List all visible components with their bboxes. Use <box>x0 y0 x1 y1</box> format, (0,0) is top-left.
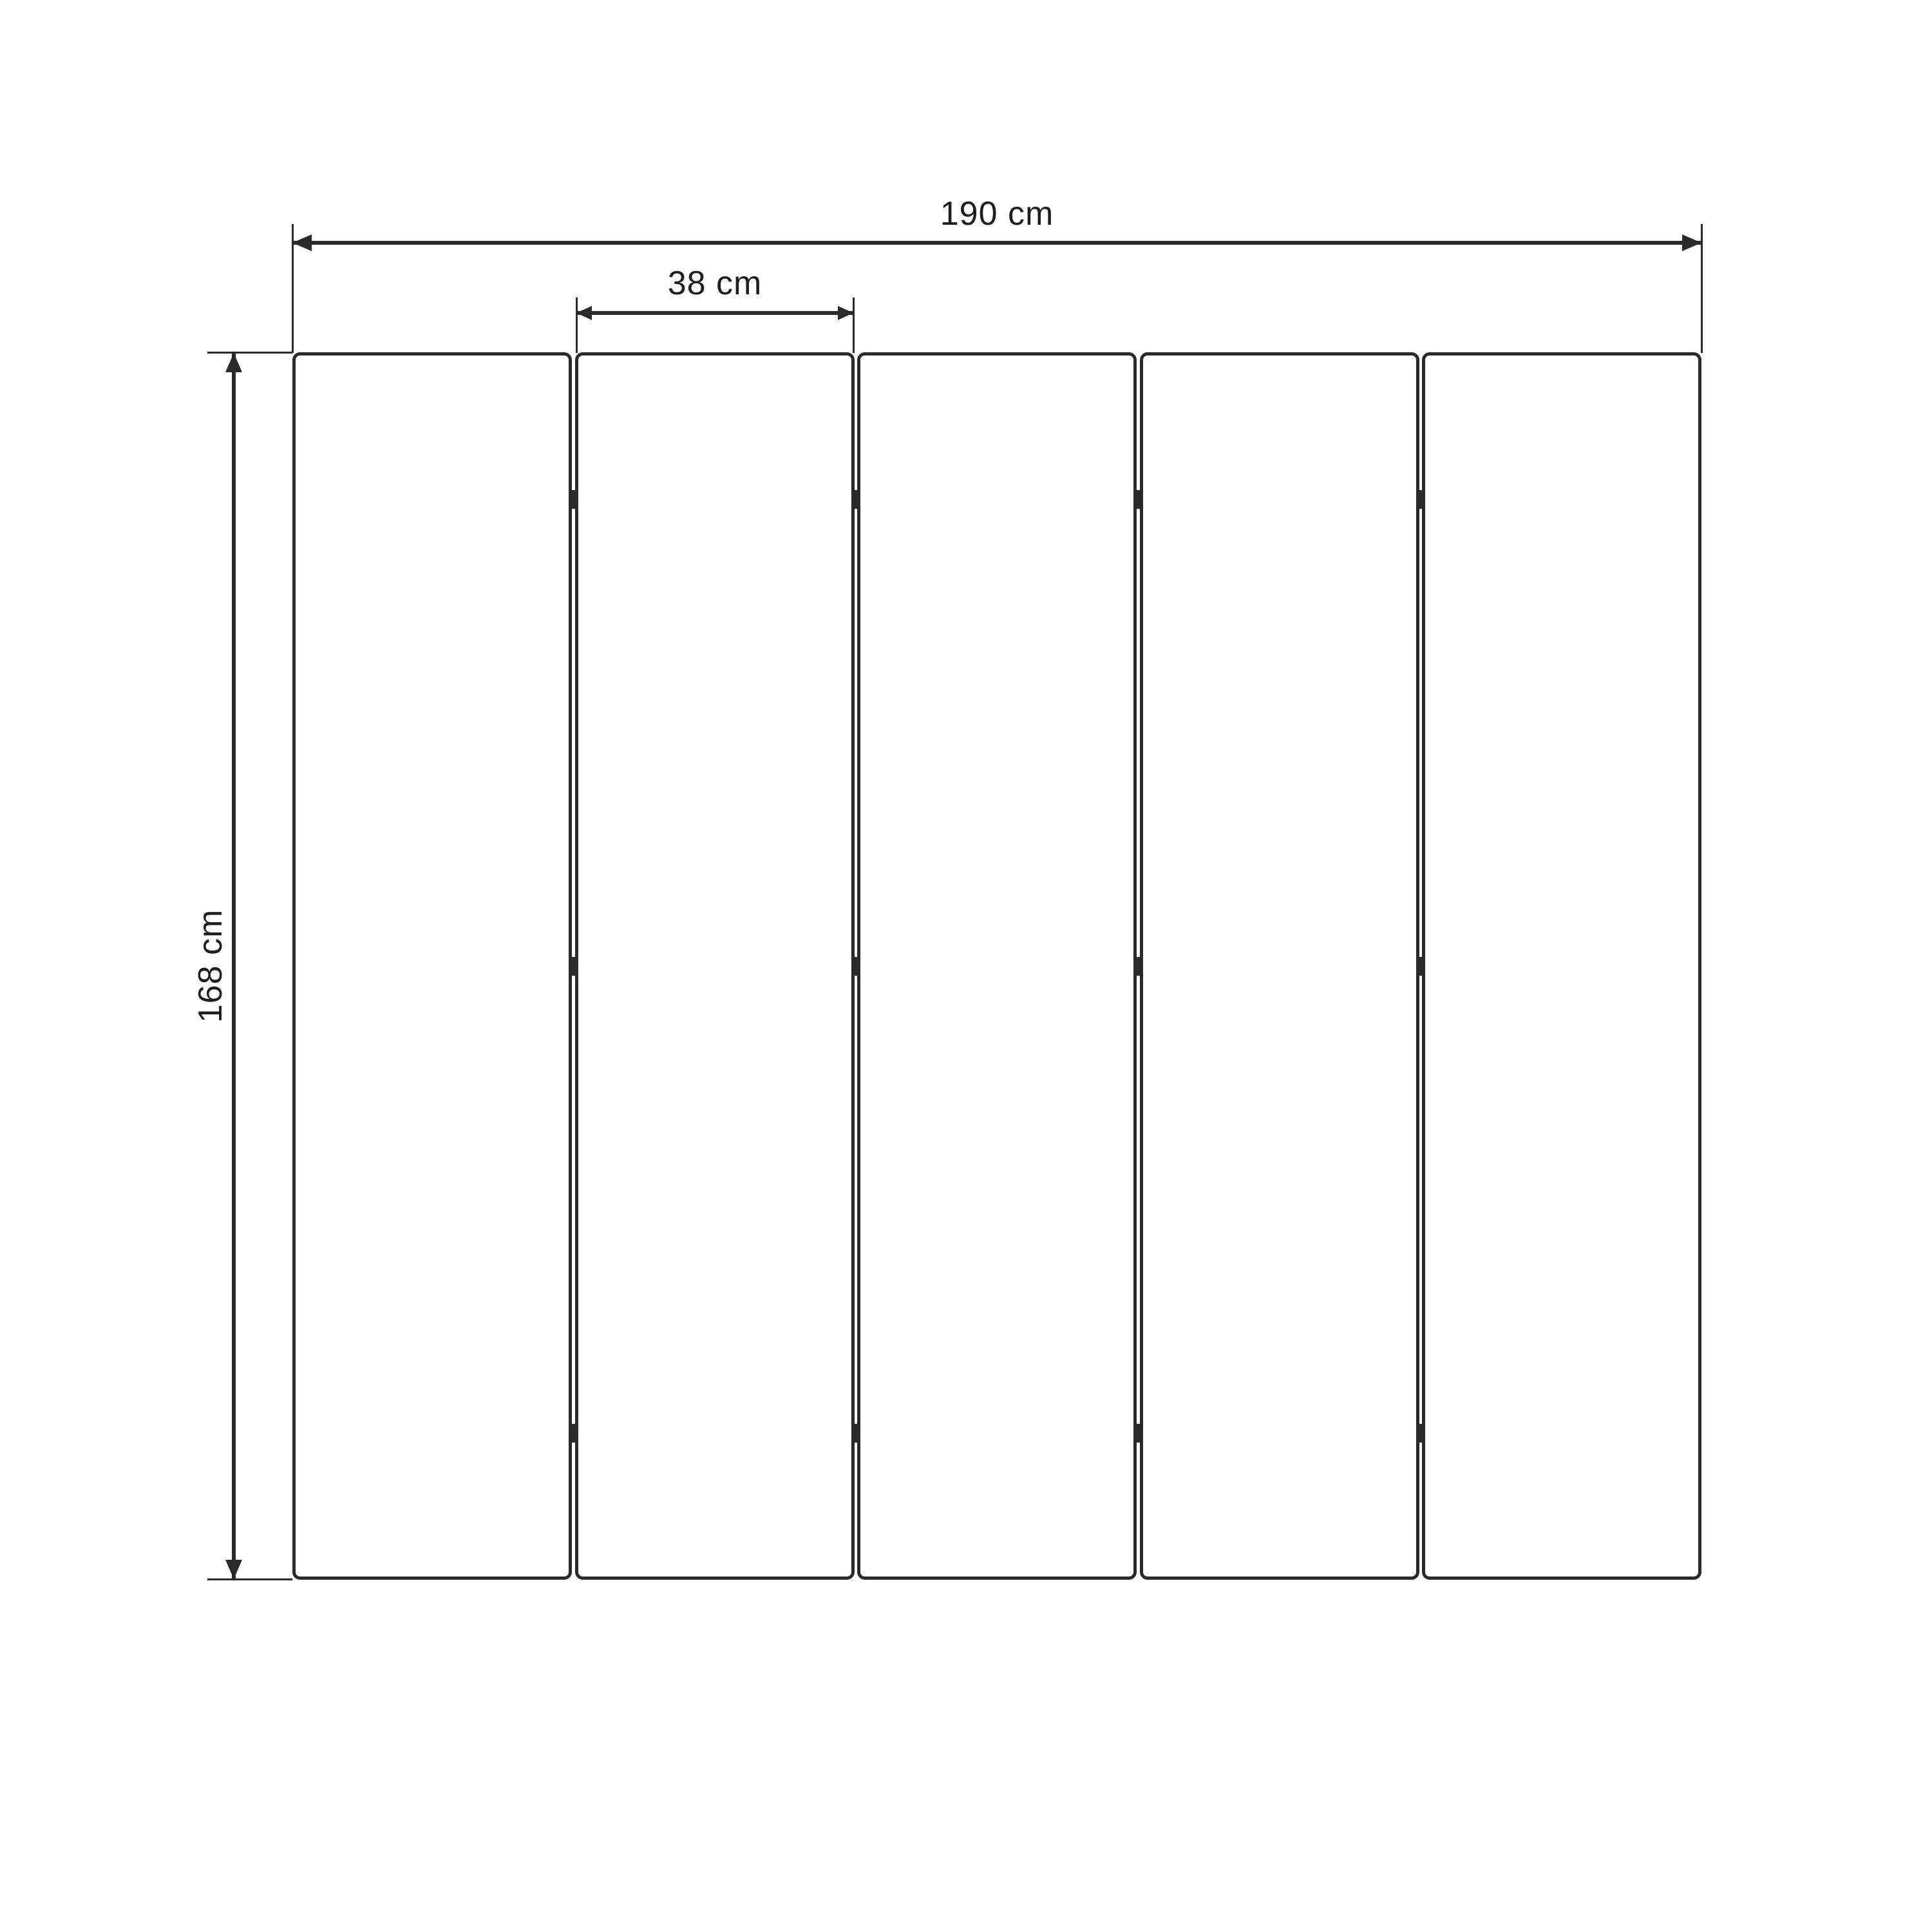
panel-1 <box>292 352 572 1580</box>
panel-2 <box>575 352 855 1580</box>
extension-line <box>207 1578 292 1580</box>
panel-width-dim-line <box>576 311 853 315</box>
panel-3 <box>857 352 1137 1580</box>
arrowhead-right-icon <box>838 306 853 320</box>
arrowhead-right-icon <box>1682 234 1701 251</box>
hinge-icon <box>1416 957 1425 976</box>
hinge-icon <box>1416 490 1425 509</box>
arrowhead-left-icon <box>292 234 312 251</box>
total-width-dim-line <box>292 241 1701 245</box>
hinge-icon <box>851 490 860 509</box>
hinge-icon <box>851 957 860 976</box>
folding-screen-dimension-diagram: 190 cm 38 cm 168 cm <box>0 0 1932 1932</box>
hinge-icon <box>1416 1424 1425 1443</box>
panel-5 <box>1422 352 1701 1580</box>
hinge-icon <box>569 1424 578 1443</box>
hinge-icon <box>1134 957 1143 976</box>
arrowhead-down-icon <box>225 1560 242 1579</box>
arrowhead-left-icon <box>576 306 592 320</box>
panel-4 <box>1140 352 1419 1580</box>
hinge-icon <box>569 490 578 509</box>
panel-width-label: 38 cm <box>668 267 762 300</box>
arrowhead-up-icon <box>225 353 242 372</box>
extension-line <box>207 352 292 354</box>
hinge-icon <box>851 1424 860 1443</box>
height-dim-line <box>232 353 236 1579</box>
hinge-icon <box>569 957 578 976</box>
height-label: 168 cm <box>194 909 227 1023</box>
hinge-icon <box>1134 1424 1143 1443</box>
hinge-icon <box>1134 490 1143 509</box>
total-width-label: 190 cm <box>940 197 1054 231</box>
